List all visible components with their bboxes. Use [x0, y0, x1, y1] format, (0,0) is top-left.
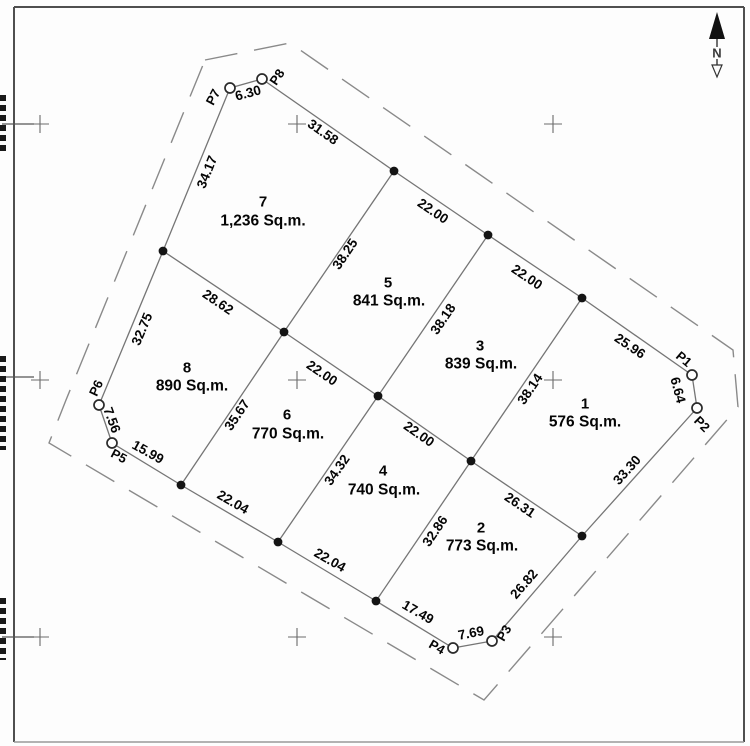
dimension-label: 22.00: [509, 261, 545, 292]
map-grid-marks: [2, 95, 562, 660]
boundary-corner-dot: [274, 538, 283, 547]
dimension-label: 22.00: [401, 418, 437, 450]
lot-number-1: 1: [581, 396, 589, 413]
dimension-label: 7.69: [457, 623, 486, 643]
sheet-frame: [14, 7, 744, 742]
lot-area-8: 890 Sq.m.: [156, 378, 228, 395]
boundary-corner-dot: [484, 231, 493, 240]
boundary-corner-dot: [578, 294, 587, 303]
north-arrow-head: [709, 12, 725, 39]
boundary-corner-dot: [159, 247, 168, 256]
dimension-label: 28.62: [200, 286, 236, 317]
grid-cross-icon: [288, 115, 306, 133]
station-label-p7: P7: [203, 86, 224, 107]
station-label-p4: P4: [426, 637, 448, 658]
lot-number-5: 5: [384, 275, 392, 292]
lot-area-4: 740 Sq.m.: [348, 482, 420, 499]
grid-cross-icon: [288, 371, 306, 389]
setback-dashed-line: [49, 43, 738, 700]
dimension-label: 33.30: [610, 452, 644, 487]
lot-area-6: 770 Sq.m.: [252, 426, 324, 443]
lot-number-4: 4: [379, 463, 388, 480]
grid-cross-icon: [544, 371, 562, 389]
station-label-p2: P2: [691, 413, 713, 435]
dimension-label: 34.17: [194, 154, 221, 191]
survey-plan-page: 6.3031.5822.0022.0025.966.6433.3026.827.…: [0, 0, 750, 746]
dimension-label: 22.04: [215, 487, 252, 517]
lot-number-8: 8: [183, 360, 191, 377]
grid-cross-icon: [288, 628, 306, 646]
lot-area-5: 841 Sq.m.: [353, 293, 425, 310]
boundary-corner-dot: [390, 167, 399, 176]
lot-boundary-line: [262, 79, 394, 171]
dimension-label: 15.99: [130, 437, 167, 467]
survey-station-p2: [692, 403, 702, 413]
lot-boundary-line: [471, 461, 582, 536]
lot-area-7: 1,236 Sq.m.: [220, 213, 305, 230]
lot-number-7: 7: [259, 194, 267, 211]
boundary-corner-dot: [177, 481, 186, 490]
dimension-label: 22.00: [415, 195, 451, 226]
grid-cross-icon: [31, 371, 49, 389]
survey-station-p4: [448, 643, 458, 653]
boundary-corner-dot: [467, 457, 476, 466]
boundary-corner-dot: [280, 328, 289, 337]
dimension-label: 22.00: [304, 357, 340, 388]
dimension-label: 38.18: [427, 300, 459, 337]
grid-cross-icon: [544, 628, 562, 646]
dimension-label: 35.67: [221, 397, 252, 433]
grid-cross-icon: [544, 115, 562, 133]
north-label: N: [712, 46, 721, 61]
lot-number-3: 3: [476, 338, 484, 355]
boundary-corner-dot: [372, 597, 381, 606]
dimension-label: 22.04: [312, 545, 349, 575]
lot-number-2: 2: [477, 520, 485, 537]
lot-area-3: 839 Sq.m.: [445, 356, 517, 373]
subdivision-plan-drawing: 6.3031.5822.0022.0025.966.6433.3026.827.…: [0, 0, 750, 746]
dimension-label: 6.64: [667, 375, 688, 405]
station-label-p1: P1: [673, 348, 695, 370]
lot-area-2: 773 Sq.m.: [446, 538, 518, 555]
north-arrow-tail-icon: [712, 65, 722, 77]
dimension-label: 38.14: [514, 370, 546, 407]
boundary-corner-dot: [374, 392, 383, 401]
dimension-label: 17.49: [400, 597, 437, 627]
dimension-label: 38.25: [329, 235, 361, 272]
lot-number-6: 6: [283, 407, 291, 424]
station-labels: P1P2P3P4P5P6P7P8: [86, 66, 713, 658]
survey-station-p1: [687, 370, 697, 380]
dimension-label: 26.82: [507, 566, 540, 601]
lot-boundary-line: [163, 251, 284, 332]
dimension-label: 32.75: [128, 310, 155, 347]
boundary-corner-dot: [578, 532, 587, 541]
dashed-outer-boundary: [49, 43, 738, 700]
lot-boundary-line: [99, 251, 163, 405]
lot-area-1: 576 Sq.m.: [549, 414, 621, 431]
dimension-label: 25.96: [612, 330, 649, 362]
north-arrow: N: [709, 12, 725, 77]
